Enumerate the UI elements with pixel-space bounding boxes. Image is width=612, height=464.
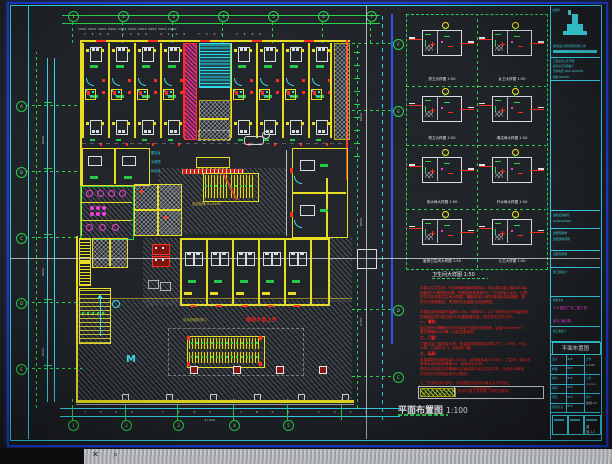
nightstand — [153, 122, 156, 125]
detail-label: 女卫大样图 1:50 — [484, 77, 540, 83]
detail-fixture — [425, 100, 431, 101]
column-marker — [276, 366, 284, 374]
core-red-bit — [140, 190, 143, 193]
nightstand — [138, 122, 141, 125]
nightstand — [275, 122, 278, 125]
table-grid-vline — [584, 355, 585, 412]
fixture-dot-magenta — [96, 206, 100, 210]
grid-bubble-bottom: 1 — [68, 420, 79, 431]
axis-dropline-top — [370, 20, 371, 43]
wc-red — [139, 91, 142, 95]
bed-pillow — [240, 48, 243, 51]
bed-pillow — [292, 48, 295, 51]
dim-tick-left — [44, 234, 52, 235]
detail-caption: 卫生间大样图 1:50 — [432, 271, 475, 278]
detail-fixture — [514, 36, 520, 37]
room-wall — [282, 43, 284, 87]
dim-tick-right — [354, 52, 360, 53]
drawing-name: 平面布置图 — [554, 344, 597, 352]
bed-pillow — [265, 253, 269, 255]
detail-fixture — [514, 225, 520, 226]
detail-caption-underline — [432, 278, 488, 279]
bed-pillow — [270, 48, 273, 51]
corridor-chip — [168, 139, 173, 141]
detail-dot-magenta — [441, 107, 443, 109]
titleblock-row-line — [550, 80, 600, 81]
nightstand — [286, 122, 289, 125]
closet-yellow — [184, 292, 192, 295]
basin-cyan — [240, 91, 242, 93]
bed-pillow — [118, 130, 121, 133]
column-marker — [233, 366, 241, 374]
detail-leader-text — [479, 226, 485, 228]
detail-fixture — [495, 161, 501, 162]
nightstand — [260, 49, 263, 52]
detail-hatch-patch — [495, 234, 503, 240]
project-name-line: ＸＸ国际广场二期工程 — [553, 305, 599, 311]
bed-symbol — [122, 156, 136, 166]
wet-unit-red — [302, 91, 305, 94]
fixture-dot-magenta — [96, 212, 100, 216]
dim-tick-left — [44, 102, 52, 103]
room-wall — [256, 43, 258, 87]
meta-grid-line — [584, 393, 600, 394]
company-name-bar — [553, 50, 597, 53]
bed-pillow — [296, 130, 299, 133]
titleblock-bottom-box — [552, 415, 568, 435]
detail-dot-magenta — [441, 168, 443, 170]
grid-bubble-left: C — [16, 233, 27, 244]
detail-label: 男卫大样图 1:50 — [414, 77, 470, 83]
detail-leader-text — [479, 37, 485, 39]
bed-pillow — [300, 253, 304, 255]
legend-swatch — [420, 388, 456, 397]
room-tag-chip — [116, 65, 124, 68]
detail-grid-divider — [477, 14, 478, 268]
meta-value: 建施-12 — [586, 401, 599, 406]
closet-yellow — [210, 292, 218, 295]
detail-leader-text — [409, 103, 415, 105]
table-label: 审核 — [552, 386, 566, 391]
basin-cyan — [292, 91, 294, 93]
detail-leader-text — [538, 107, 544, 109]
detail-dot-magenta — [511, 107, 513, 109]
axis-run-right — [352, 376, 393, 377]
detail-dim-red — [518, 235, 523, 236]
bed-pillow — [118, 48, 121, 51]
detail-leader-text — [468, 107, 474, 109]
detail-dim-red — [518, 112, 523, 113]
nightstand — [138, 49, 141, 52]
dim-line-right-green — [357, 42, 358, 408]
nightstand — [127, 49, 130, 52]
escalator2-red-cap — [187, 336, 190, 340]
detail-grid-row-line — [406, 145, 546, 146]
fixture-dot-magenta — [102, 206, 106, 210]
note-text-line: 三、标高： — [420, 351, 542, 357]
bed-pillow — [213, 253, 217, 255]
bed-pillow — [92, 130, 95, 133]
table-label: 设计 — [552, 357, 566, 362]
titleblock-row-line — [550, 326, 600, 327]
detail-hatch-patch — [425, 172, 433, 178]
company-logo-icon — [567, 24, 583, 31]
wall-top-red-seg — [304, 40, 314, 42]
bed-pillow — [222, 253, 226, 255]
bed-pillow — [196, 253, 200, 255]
detail-fixture — [514, 163, 520, 164]
room-tag-chip — [266, 280, 274, 283]
detail-grid-row-line — [406, 209, 546, 210]
bed-pillow — [148, 48, 151, 51]
dim-line-left-1 — [47, 58, 48, 402]
room-tag-chip — [214, 280, 222, 283]
detail-fixture — [495, 223, 501, 224]
corridor-centerline — [82, 143, 348, 144]
dim-tick-left — [44, 299, 52, 300]
stage-line: 施工图设计 — [553, 270, 579, 275]
detail-fixture — [425, 161, 431, 162]
grid-bubble-right: F — [393, 39, 404, 50]
room-wall — [160, 43, 162, 87]
fixture-ring-magenta — [86, 190, 93, 197]
detail-leader-text — [538, 41, 544, 43]
fixture-ring-magenta — [86, 224, 93, 231]
corridor-chip — [238, 139, 243, 141]
crosshair-vertical — [366, 5, 367, 439]
detail-leader-text — [479, 164, 485, 166]
room-wall — [308, 43, 310, 87]
room-wall — [134, 87, 136, 138]
titleblock-row-line — [550, 210, 600, 211]
corridor-chip — [316, 139, 321, 141]
cad-canvas[interactable]: 12345672900 3600 3600 3600 2050 2050 360… — [0, 0, 612, 448]
room-tag-chip — [320, 209, 328, 212]
escalator-diagonal — [203, 173, 257, 200]
titleblock-row-line — [550, 267, 600, 268]
room-wall — [256, 87, 258, 138]
escalator2-dashes — [191, 342, 259, 344]
basin-cyan — [144, 91, 146, 93]
corridor-chip — [142, 139, 147, 141]
company-info-line: 邮编 000000 — [553, 75, 598, 80]
door-frame-red — [290, 212, 293, 217]
room-divider — [292, 192, 346, 194]
detail-label: 茶水间大样图 1:50 — [414, 200, 470, 206]
dim-text-top-1: 2900 3600 3600 3600 2050 2050 3600 3600 … — [78, 27, 350, 31]
titleblock-row-line — [550, 296, 600, 297]
detail-leader-text — [468, 168, 474, 170]
detail-hatch-patch — [495, 45, 503, 51]
table-grid-vline — [566, 355, 567, 412]
detail-leader-text — [409, 164, 415, 166]
detail-leader-right — [530, 170, 544, 171]
detail-fixture — [425, 223, 431, 224]
escalator2-red-cap — [259, 362, 262, 366]
detail-dot-magenta — [441, 230, 443, 232]
room-wall — [310, 238, 312, 306]
void-label-yellow: 自动扶梯检修口 — [183, 317, 231, 323]
room-tag-chip — [292, 280, 300, 283]
grid-bubble-left: A — [16, 101, 27, 112]
nightstand — [286, 49, 289, 52]
nightstand — [164, 49, 167, 52]
bed-pillow — [318, 130, 321, 133]
bed-symbol — [88, 156, 102, 166]
titleblock-bottom-bar — [586, 419, 597, 421]
wc-red — [287, 91, 290, 95]
lobby-tag: 大堂吧 — [151, 160, 167, 164]
titleblock-row-line — [550, 57, 600, 58]
stair-core-cyan — [199, 43, 231, 88]
bed-pillow — [240, 130, 243, 133]
seal-line: 注册建筑师章 — [553, 237, 593, 242]
corridor-chip — [264, 139, 269, 141]
detail-fixture — [444, 102, 450, 103]
detail-inner-wall — [437, 219, 438, 243]
bed-pillow — [96, 130, 99, 133]
detail-dot-magenta — [441, 41, 443, 43]
bed-pillow — [270, 130, 273, 133]
table-signature: ×× — [567, 404, 582, 410]
detail-fixture — [495, 100, 501, 101]
basin-cyan — [318, 91, 320, 93]
table-signature: ×× — [567, 366, 582, 372]
shaft-edge-red — [183, 43, 185, 138]
titleblock-bottom-bar — [570, 419, 580, 421]
detail-inner-wall — [507, 96, 508, 120]
room-wall — [134, 43, 136, 87]
note-text-line: 详见设计总说明及各专业图纸。 — [420, 372, 542, 377]
dim-line-bottom-2 — [60, 416, 400, 417]
dim-tick-right — [354, 130, 360, 131]
wet-unit-red — [102, 91, 105, 94]
monitor-photo: 12345672900 3600 3600 3600 2050 2050 360… — [0, 0, 612, 464]
caption-underline — [398, 414, 448, 416]
nightstand — [164, 122, 167, 125]
subtitle-line: 施工图设计 — [553, 329, 593, 333]
meta-grid-line — [584, 374, 600, 375]
fixture-dot-magenta — [90, 212, 94, 216]
detail-pin-stem — [444, 154, 445, 158]
detail-leader-right — [460, 43, 474, 44]
detail-leader-right — [460, 232, 474, 233]
wc-red — [235, 91, 238, 95]
basin-cyan — [92, 91, 94, 93]
detail-pin-stem — [514, 27, 515, 31]
nightstand — [234, 49, 237, 52]
lobby-edge-line — [286, 150, 287, 236]
grid-bubble-bottom: 4 — [229, 420, 240, 431]
wall-bandC-top — [180, 238, 330, 240]
cert-line: A100000000 — [553, 219, 593, 224]
bed-pillow — [292, 130, 295, 133]
room-wall — [108, 43, 110, 87]
grid-bubble-left: E — [16, 364, 27, 375]
nightstand — [86, 122, 89, 125]
detail-leader-text — [479, 103, 485, 105]
table-label: 制图 — [552, 367, 566, 372]
chair-dot — [155, 247, 157, 249]
detail-hatch-patch — [495, 172, 503, 178]
detail-leader-right — [460, 109, 474, 110]
table-label: 校对 — [552, 376, 566, 381]
dim-tick-left — [44, 168, 52, 169]
midleft-rooms — [82, 148, 150, 186]
wet-unit-red — [128, 91, 131, 94]
room-wall — [232, 238, 234, 306]
table-label: 项目负责 — [552, 405, 566, 410]
project-label: 建筑专业 — [553, 298, 573, 302]
nightstand — [249, 122, 252, 125]
detail-leader-text — [538, 230, 544, 232]
dim-line-left-2 — [54, 58, 55, 402]
room-tag-chip — [142, 65, 150, 68]
room-wall — [108, 87, 110, 138]
wall-top-red-seg — [96, 40, 106, 42]
detail-label: 公卫大样图 1:50 — [484, 259, 540, 265]
note-text-line: 二、门窗： — [420, 335, 542, 341]
dim-text-left: 9000 — [41, 250, 45, 276]
dim-text-bottom: 7500 7500 7800 7500 — [84, 410, 334, 414]
crosshair-horizontal — [10, 258, 600, 259]
void-label-red: 酒店大堂上空 — [246, 316, 290, 323]
nightstand — [312, 49, 315, 52]
nightstand — [249, 49, 252, 52]
detail-pin-stem — [514, 93, 515, 97]
dim-tick-right — [354, 143, 360, 144]
dim-text-left: 8000 — [41, 330, 45, 356]
elevator-cell-hatch — [134, 184, 158, 210]
elevator-cell-hatch — [134, 210, 158, 236]
binding-margin-line — [28, 5, 29, 439]
bed-symbol — [300, 205, 315, 216]
nightstand — [127, 122, 130, 125]
plan-bottom-gray — [76, 404, 354, 405]
grid-bubble-top: 1 — [68, 11, 79, 22]
grid-bubble-top: 4 — [218, 11, 229, 22]
wall-top-red-seg — [148, 40, 158, 42]
closet-yellow — [262, 292, 270, 295]
dim-text-right: 8000 — [359, 200, 363, 226]
red-chair-pair — [152, 244, 170, 255]
bed-pillow — [274, 253, 278, 255]
axis-line-left-run — [26, 368, 82, 369]
detail-inner-wall — [437, 96, 438, 120]
escalator2-dashes — [191, 356, 259, 358]
detail-hatch-patch — [425, 45, 433, 51]
sheet-number: 建施-12 — [586, 424, 598, 430]
dim-tick-right — [354, 91, 360, 92]
legend-text: 表示中庭上空范围（本层无楼板） — [458, 389, 540, 395]
grid-bubble-right: C — [393, 372, 404, 383]
reception-desk — [198, 130, 230, 141]
basin-cyan — [170, 91, 172, 93]
room-wall — [282, 87, 284, 138]
nightstand — [275, 49, 278, 52]
room-wall — [308, 87, 310, 138]
detail-hatch-patch — [425, 234, 433, 240]
dim-tick-right — [354, 156, 360, 157]
table-grid-line — [550, 412, 584, 413]
nightstand — [101, 122, 104, 125]
bed-pillow — [144, 130, 147, 133]
lobby-furniture — [244, 136, 264, 145]
dim-text-right: 5700 — [359, 300, 363, 326]
wc-red — [113, 91, 116, 95]
fixture-ring-magenta — [99, 224, 106, 231]
detail-leader-left — [409, 105, 422, 106]
detail-leader-right — [530, 43, 544, 44]
wet-unit-red — [250, 79, 253, 82]
bed-pillow — [239, 253, 243, 255]
fixture-ring-magenta — [119, 190, 126, 197]
bed-symbol — [300, 160, 315, 171]
room-wall — [160, 87, 162, 138]
bed-pillow — [122, 48, 125, 51]
room-wall — [284, 238, 286, 306]
room-tag-chip — [264, 65, 272, 68]
nightstand — [112, 122, 115, 125]
grid-bubble-top: 3 — [168, 11, 179, 22]
detail-leader-left — [479, 166, 492, 167]
bed-pillow — [291, 253, 295, 255]
detail-dim-red — [518, 173, 523, 174]
wc-red — [165, 91, 168, 95]
right-void-hatch — [330, 238, 352, 302]
bed-pillow — [170, 130, 173, 133]
axis-line-left-run — [26, 302, 82, 303]
dim-text-right: 8000 — [359, 95, 363, 121]
bed-pillow — [318, 48, 321, 51]
desk — [148, 280, 159, 289]
detail-inner-wall — [507, 219, 508, 243]
room-tag-chip — [90, 176, 98, 179]
fixture-dot-magenta — [90, 206, 94, 210]
grid-bubble-left: B — [16, 167, 27, 178]
core-divider — [199, 118, 229, 120]
table-signature: ×× — [567, 385, 582, 391]
grid-bubble-top: 6 — [318, 11, 329, 22]
room-tag-chip — [238, 65, 246, 68]
detail-grid-row-line — [406, 86, 546, 87]
detail-inner-wall — [507, 157, 508, 181]
meta-label: 比例 — [586, 357, 599, 361]
room-tag-chip — [320, 164, 328, 167]
detail-fixture — [495, 34, 501, 35]
detail-inner-wall — [437, 30, 438, 54]
detail-pin-stem — [514, 216, 515, 220]
wc-red — [261, 91, 264, 95]
basin-cyan — [266, 91, 268, 93]
seal-line-2: 出图专用章 — [553, 252, 587, 257]
wc-red — [313, 91, 316, 95]
wet-unit-red — [302, 79, 305, 82]
bed-pillow — [248, 253, 252, 255]
grid-bubble-bottom: 5 — [283, 420, 294, 431]
room-tag-chip — [290, 65, 298, 68]
bed-pillow — [144, 48, 147, 51]
void-boundary-yellow — [76, 298, 352, 299]
detail-leader-right — [530, 232, 544, 233]
closet-yellow — [288, 292, 296, 295]
closet-yellow — [236, 292, 244, 295]
plan-caption-scale: 1:100 — [446, 406, 468, 415]
nightstand — [260, 122, 263, 125]
detail-leader-left — [409, 166, 422, 167]
axis-run-right — [352, 43, 393, 44]
fixture-dot-magenta — [102, 212, 106, 216]
